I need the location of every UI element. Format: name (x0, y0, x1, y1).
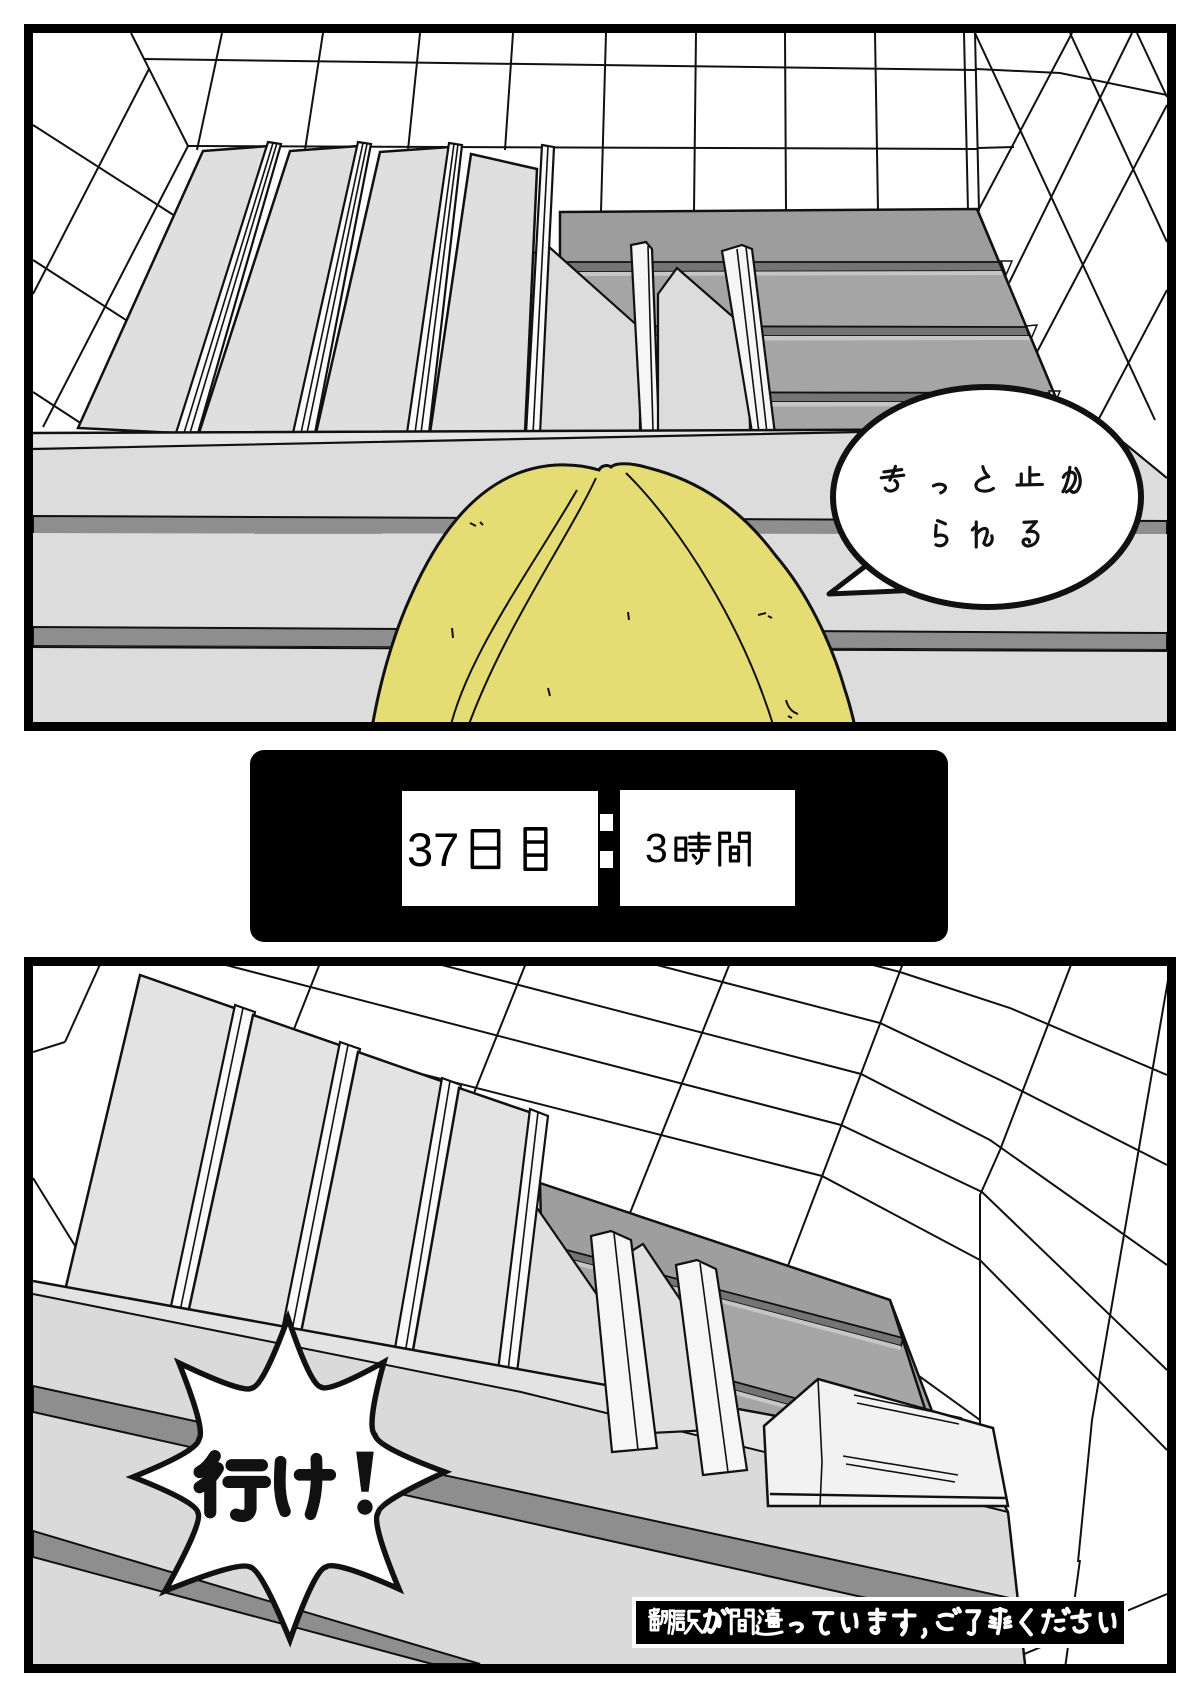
svg-text:3: 3 (645, 825, 668, 871)
svg-text:37: 37 (407, 823, 459, 876)
